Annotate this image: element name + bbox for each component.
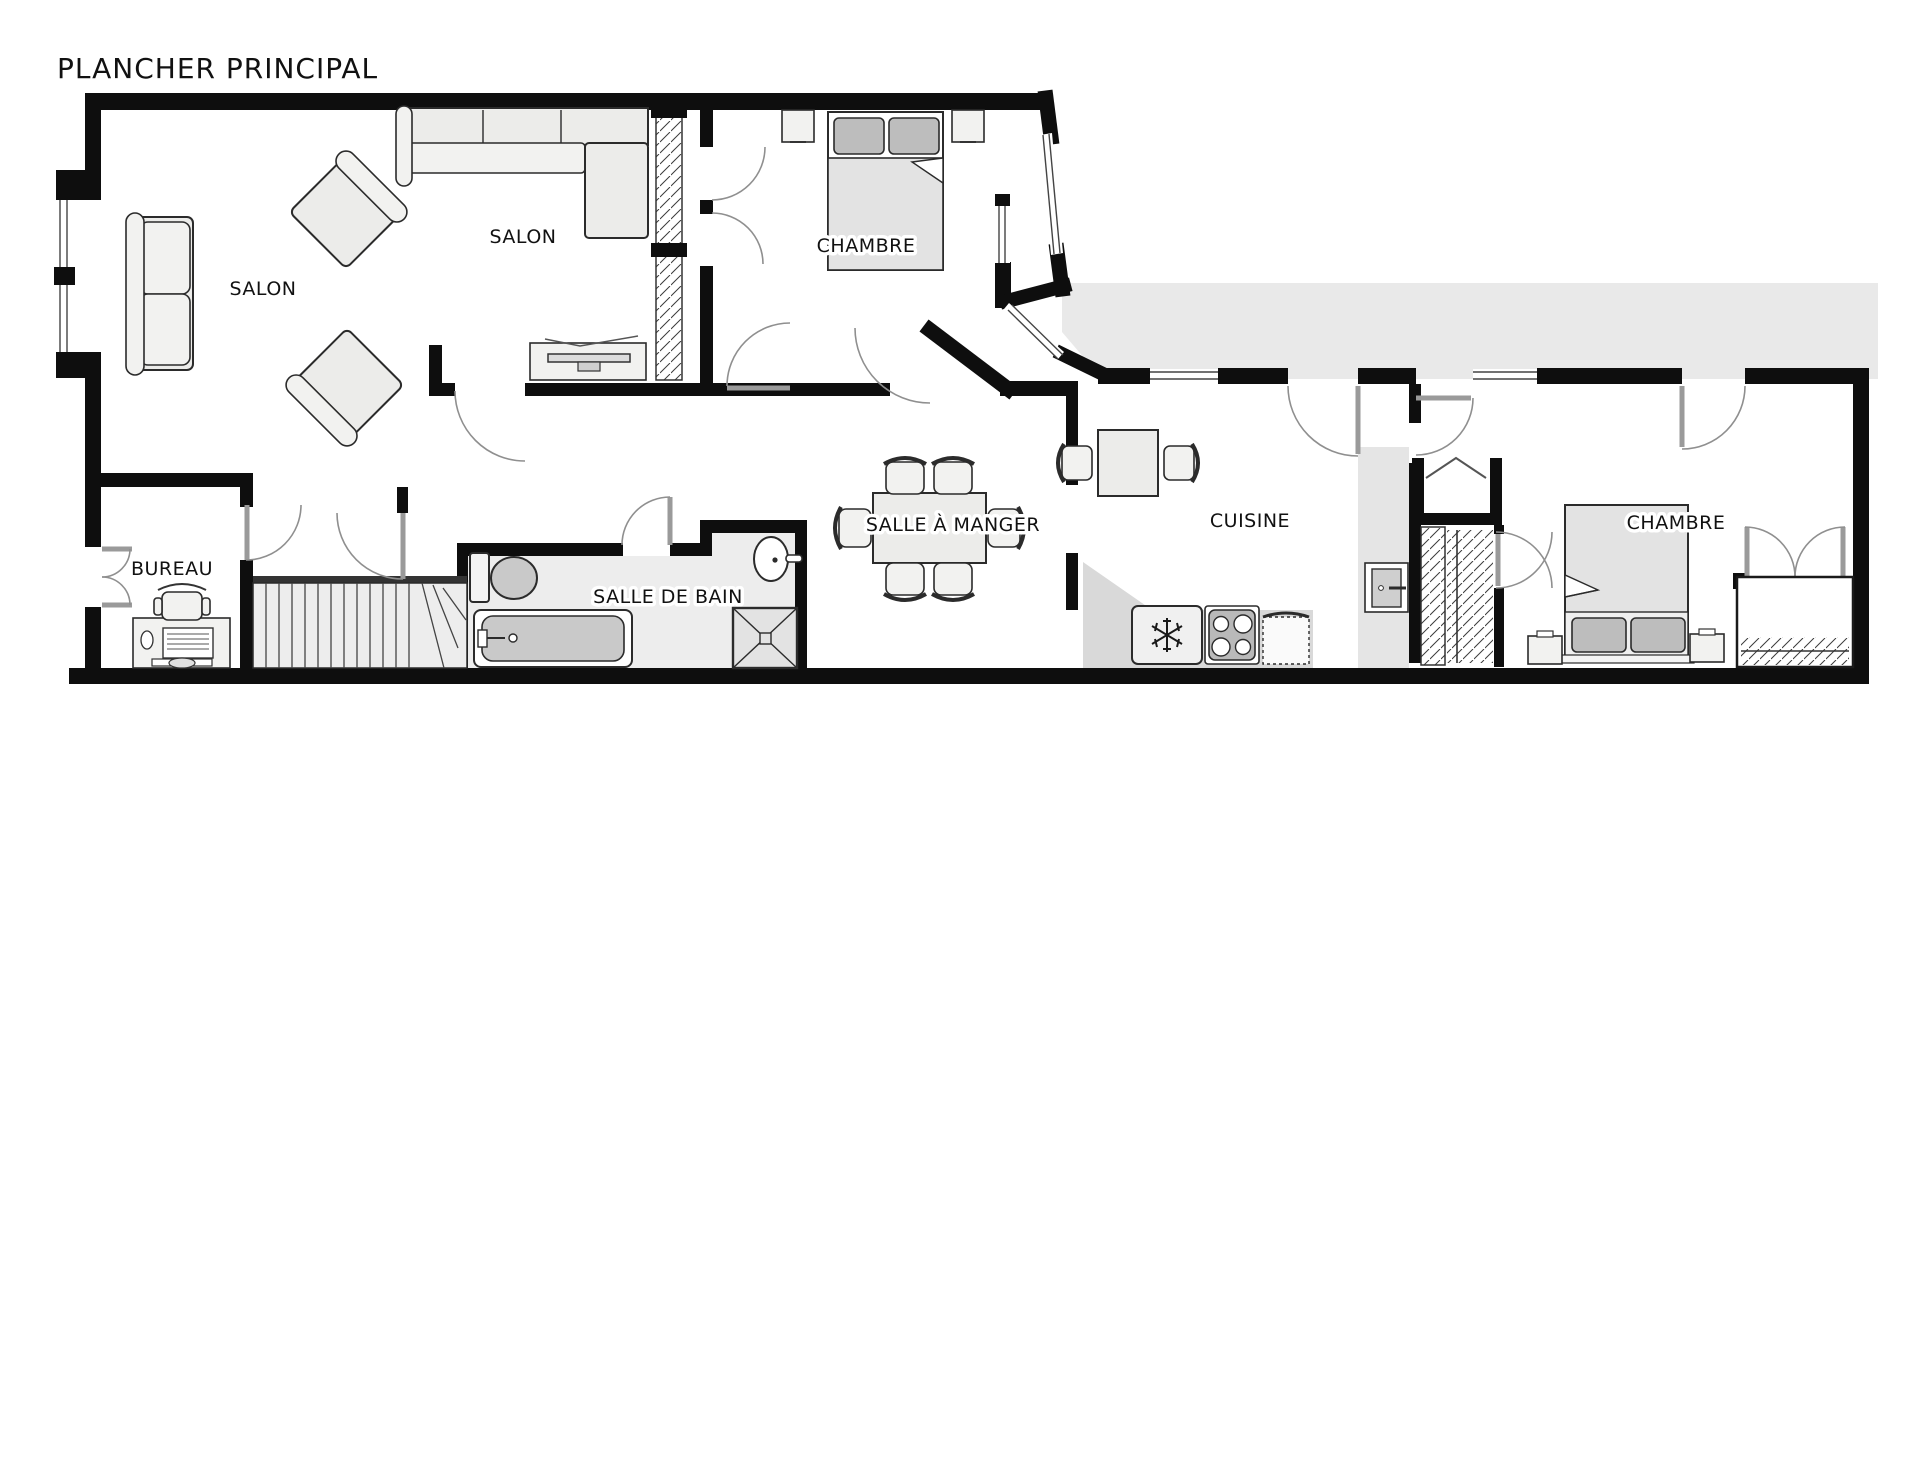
nightstand: [1528, 636, 1562, 664]
sofa: [126, 213, 193, 375]
pillow: [889, 118, 939, 154]
entry-double-door: [102, 549, 132, 605]
pillow: [1631, 618, 1685, 652]
wall-left: [85, 378, 101, 547]
nightstand: [952, 110, 984, 142]
chambre1-door: [727, 323, 790, 388]
bureau-furniture: [133, 584, 230, 668]
plan-title: PLANCHER PRINCIPAL: [57, 52, 378, 85]
wall-left-mullion: [54, 267, 75, 285]
dining-chair: [884, 563, 926, 600]
chambre2-deck-door: [1682, 386, 1745, 449]
shower: [733, 608, 797, 668]
wall-corridor-jamb: [397, 487, 408, 513]
label-bureau: BUREAU: [131, 558, 213, 580]
wall-chambre1-left: [700, 266, 713, 390]
wall-bay-cap: [995, 194, 1010, 208]
stove: [1205, 606, 1259, 664]
wall-under-deck: [1537, 368, 1682, 384]
deck: [1062, 283, 1878, 379]
wall-salon-bottom: [429, 383, 455, 396]
nightstand: [1690, 634, 1724, 662]
wall-left-bay: [56, 170, 101, 200]
wall-under-deck: [1098, 368, 1150, 384]
chambre1-door-b: [712, 213, 763, 264]
label-cuisine: CUISINE: [1210, 510, 1290, 532]
pillow: [1572, 618, 1626, 652]
closet-hatch-wall: [1421, 527, 1445, 665]
back-hall-floor: [1358, 447, 1409, 668]
wall-under-deck: [1358, 368, 1416, 384]
wall-kitchen-east: [1409, 384, 1421, 423]
chambre1-door-a: [712, 147, 765, 200]
wall-bureau-right: [240, 560, 253, 668]
salon-door: [455, 391, 525, 461]
wall-bay-link: [1007, 286, 1064, 301]
wall-slant-top: [1046, 98, 1051, 137]
label-chambre-2: CHAMBRE: [1627, 512, 1726, 534]
wall-walkin-east: [1494, 588, 1504, 667]
label-salle-de-bain: SALLE DE BAIN: [593, 586, 743, 608]
bathroom-door: [622, 497, 670, 545]
floor-plan-page: PLANCHER PRINCIPAL: [0, 0, 1920, 1483]
walkin-closet: [1447, 530, 1493, 663]
dining-chair: [932, 458, 974, 494]
label-salon-1: SALON: [230, 278, 297, 300]
window: [54, 200, 73, 267]
wall-bureau-top: [101, 473, 243, 487]
stair-hatch-wall: [651, 104, 687, 380]
wall-under-deck: [1218, 368, 1288, 384]
window: [1004, 303, 1064, 359]
nightstand: [782, 110, 814, 142]
wall-chambre1-left: [700, 200, 713, 214]
door-panel-icon: [1365, 563, 1408, 612]
toilet: [470, 553, 537, 602]
walkin-closet-door: [1496, 532, 1552, 588]
kitchen-chair: [1058, 444, 1092, 482]
wall-bottom: [69, 668, 1869, 684]
bureau-door: [246, 505, 301, 560]
wall-bifold-closet: [1412, 513, 1502, 525]
sectional-sofa: [396, 106, 648, 238]
tv-console: [530, 336, 646, 380]
wall-hall-top: [525, 383, 890, 396]
label-salle-a-manger: SALLE À MANGER: [866, 513, 1040, 536]
wall-diagonal: [930, 330, 1008, 389]
pillow: [834, 118, 884, 154]
label-chambre-1: CHAMBRE: [817, 235, 916, 257]
window: [1040, 133, 1063, 255]
floor-plan-canvas: PLANCHER PRINCIPAL: [0, 0, 1920, 1483]
wall-under-deck: [1745, 368, 1869, 384]
closet-double-door: [1745, 527, 1845, 577]
stairs: [253, 583, 467, 668]
fridge: [1132, 606, 1202, 664]
dining-chair: [884, 458, 926, 494]
desk: [133, 618, 230, 668]
wall-stairs-top: [253, 576, 467, 583]
wall-bath-jamb: [670, 543, 700, 556]
backhall-deck-door: [1416, 398, 1473, 455]
wall-bath-top2: [700, 520, 807, 533]
wall-left: [85, 607, 101, 684]
window: [1473, 369, 1537, 383]
window: [54, 285, 73, 352]
wall-left-bay: [56, 352, 101, 378]
office-chair: [154, 584, 210, 620]
corridor-door: [337, 513, 403, 579]
window: [995, 206, 1010, 263]
window: [1150, 369, 1218, 383]
wall-left: [85, 93, 101, 170]
armchair: [285, 147, 411, 273]
armchair: [282, 324, 408, 450]
wall-chambre1-left: [700, 93, 713, 147]
closet: [1737, 577, 1853, 667]
bifold-door: [1426, 458, 1486, 478]
bathtub: [474, 610, 632, 667]
kitchen-chair: [1164, 444, 1198, 482]
kitchen-deck-door: [1288, 386, 1358, 456]
wall-bifold-closet: [1490, 458, 1502, 513]
wall-kitchen-top: [1000, 381, 1078, 396]
wall-bureau-right: [240, 473, 253, 507]
wall-bath-top: [468, 543, 623, 556]
label-salon-2: SALON: [490, 226, 557, 248]
dining-chair: [932, 563, 974, 600]
wall-kitchen-divider: [1066, 553, 1078, 610]
kitchen-table: [1098, 430, 1158, 496]
dishwasher: [1263, 613, 1309, 664]
wall-right: [1853, 368, 1869, 684]
